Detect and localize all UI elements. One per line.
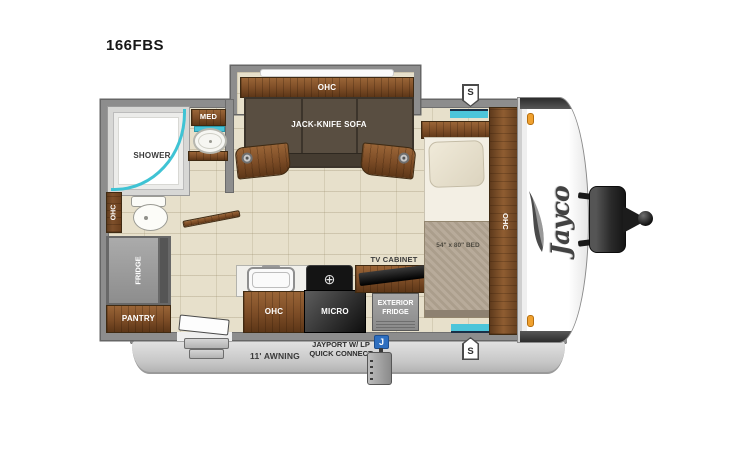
model-title: 166FBS: [106, 37, 164, 54]
medicine-cabinet: MED: [191, 109, 226, 126]
sink-drain-icon: [209, 140, 212, 143]
bed-foot-edge: [425, 310, 491, 317]
propane-tank-cover: [589, 186, 626, 253]
bed-blanket: [424, 221, 492, 318]
floorplan-canvas: 166FBS 11' AWNING SHOWER MED OHC FRIDGE: [0, 0, 731, 469]
exterior-fridge: EXTERIOR FRIDGE: [372, 293, 419, 331]
pantry-cabinet: PANTRY: [106, 305, 171, 333]
cupholder-icon: [398, 152, 410, 164]
bathroom-ohc-label: OHC: [111, 205, 118, 221]
bathroom-overhead-cabinet: OHC: [106, 192, 122, 233]
med-cabinet-label: MED: [200, 113, 217, 122]
sofa-overhead-cabinet: OHC: [240, 77, 414, 98]
marker-light-icon: [527, 113, 534, 125]
bedroom-ohc-label: OHC: [500, 213, 509, 230]
refrigerator-label-wrap: FRIDGE: [106, 236, 171, 305]
exterior-fridge-label: EXTERIOR FRIDGE: [374, 296, 417, 321]
entry-step-2: [189, 349, 224, 359]
entry-step-1: [184, 338, 229, 349]
brand-logo: Jayco: [523, 146, 579, 296]
refrigerator-label: FRIDGE: [134, 256, 143, 284]
tv-cabinet-label: TV CABINET: [358, 256, 430, 265]
speaker-badge-label: S: [462, 87, 479, 98]
hitch-ball-icon: [638, 211, 653, 226]
awning-label: 11' AWNING: [230, 352, 320, 362]
cap-trim-top: [520, 98, 583, 109]
jayport-device: [367, 352, 392, 385]
cupholder-icon: [241, 152, 253, 164]
jayport-badge-letter: J: [379, 337, 384, 347]
jayco-bird-icon: [528, 188, 546, 254]
speaker-badge-icon: S: [462, 337, 479, 360]
bedroom-window-bottom: [451, 324, 489, 333]
brand-logo-text: Jayco: [546, 186, 575, 255]
jayport-label: JAYPORT W/ LP QUICK CONNECT: [308, 341, 374, 358]
sofa-ohc-label: OHC: [318, 83, 336, 92]
bathroom-wall: [226, 100, 233, 192]
cap-trim-bottom: [520, 331, 583, 342]
microwave: MICRO: [304, 290, 366, 333]
kitchen-overhead-cabinet: OHC: [243, 291, 305, 333]
slideout-window: [260, 69, 394, 77]
kitchen-sink-basin: [252, 272, 290, 288]
sofa-end-table-left: [234, 142, 291, 179]
toilet-flush-icon: [144, 216, 148, 220]
burner-icon: ⊕: [324, 271, 336, 288]
bedroom-window-top: [450, 109, 488, 118]
speaker-badge-icon: S: [462, 84, 479, 107]
microwave-label: MICRO: [321, 307, 349, 316]
refrigerator: FRIDGE: [106, 236, 171, 305]
bed-size-label: 54" x 80" BED: [433, 242, 483, 250]
exterior-fridge-vents: [376, 321, 415, 328]
speaker-badge-label: S: [462, 346, 479, 357]
marker-light-icon: [527, 315, 534, 327]
pantry-label: PANTRY: [122, 314, 155, 323]
jayport-badge-icon: J: [374, 335, 389, 349]
shower-label: SHOWER: [121, 151, 183, 160]
sofa-end-table-right: [359, 142, 416, 179]
bathroom-sink: [193, 128, 227, 154]
kitchen-ohc-label: OHC: [265, 307, 283, 316]
kitchen-sink: [247, 267, 295, 293]
bed-pillow: [428, 140, 485, 188]
sofa-label: JACK-KNIFE SOFA: [250, 120, 408, 129]
toilet-bowl: [133, 204, 168, 231]
